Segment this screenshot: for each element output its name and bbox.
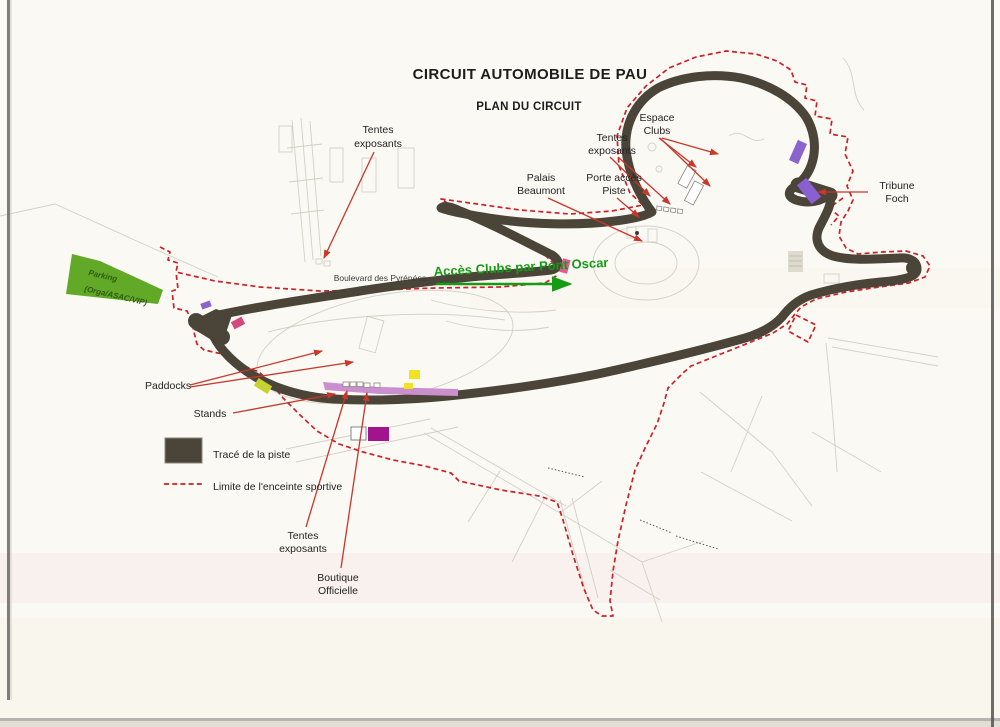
legend: Tracé de la piste Limite de l'enceinte s… [164, 438, 342, 493]
label-boutique-officielle-2: Officielle [318, 585, 358, 597]
label-tribune-foch-2: Foch [885, 193, 909, 205]
enclosure-diamond-detail [788, 315, 816, 342]
page-title: CIRCUIT AUTOMOBILE DE PAU [413, 66, 648, 83]
label-espace-clubs-1: Espace [639, 112, 674, 124]
club-purple-rect-north [789, 140, 807, 164]
boutique-officielle-rect [368, 427, 389, 441]
track [190, 76, 920, 400]
label-paddocks: Paddocks [145, 380, 191, 392]
label-tentes-exposants-s-2: exposants [279, 543, 327, 555]
label-palais-beaumont-1: Palais [527, 172, 556, 184]
label-porte-acces-2: Piste [602, 185, 626, 197]
arrow-porte-acces [617, 198, 639, 217]
purple-marker-west [200, 300, 211, 309]
legend-enclosure-label: Limite de l'enceinte sportive [213, 481, 342, 493]
yellow-marker-1 [409, 370, 420, 379]
yellow-marker-2 [404, 383, 413, 389]
label-palais-beaumont-2: Beaumont [517, 185, 565, 197]
track-path [211, 76, 917, 400]
page-subtitle: PLAN DU CIRCUIT [476, 101, 581, 113]
label-porte-acces-1: Porte accès [586, 172, 641, 184]
arrow-boutique [341, 393, 367, 568]
track-right-hairpin-blob [906, 261, 920, 275]
label-espace-clubs-2: Clubs [644, 125, 671, 137]
label-boutique-officielle-1: Boutique [317, 572, 359, 584]
label-tribune-foch-1: Tribune [879, 180, 914, 192]
arrow-tentes-nw [324, 152, 374, 258]
label-tentes-exposants-nw-2: exposants [354, 138, 402, 150]
annotation-arrows [190, 138, 868, 568]
arrow-tentes-s [306, 391, 347, 527]
label-boulevard-pyrenees: Boulevard des Pyrénées [334, 273, 427, 283]
tent-row-porte-acces [656, 206, 682, 214]
pink-marker-west [231, 317, 245, 330]
circuit-map: Parking (Orga/ASAC/VIP) [0, 0, 1000, 727]
building-outline [351, 427, 366, 440]
label-tentes-exposants-n-1: Tentes [597, 132, 628, 144]
parking-area: Parking (Orga/ASAC/VIP) [66, 254, 163, 307]
arrow-espace-clubs-1 [662, 138, 718, 154]
legend-track-label: Tracé de la piste [213, 449, 290, 461]
label-tentes-exposants-s-1: Tentes [288, 530, 319, 542]
label-tentes-exposants-nw-1: Tentes [363, 124, 394, 136]
label-stands: Stands [194, 408, 227, 420]
tent-boxes-stands [343, 382, 380, 388]
label-tentes-exposants-n-2: exposants [588, 145, 636, 157]
legend-track-swatch [165, 438, 202, 463]
scan-tints [0, 268, 1000, 723]
